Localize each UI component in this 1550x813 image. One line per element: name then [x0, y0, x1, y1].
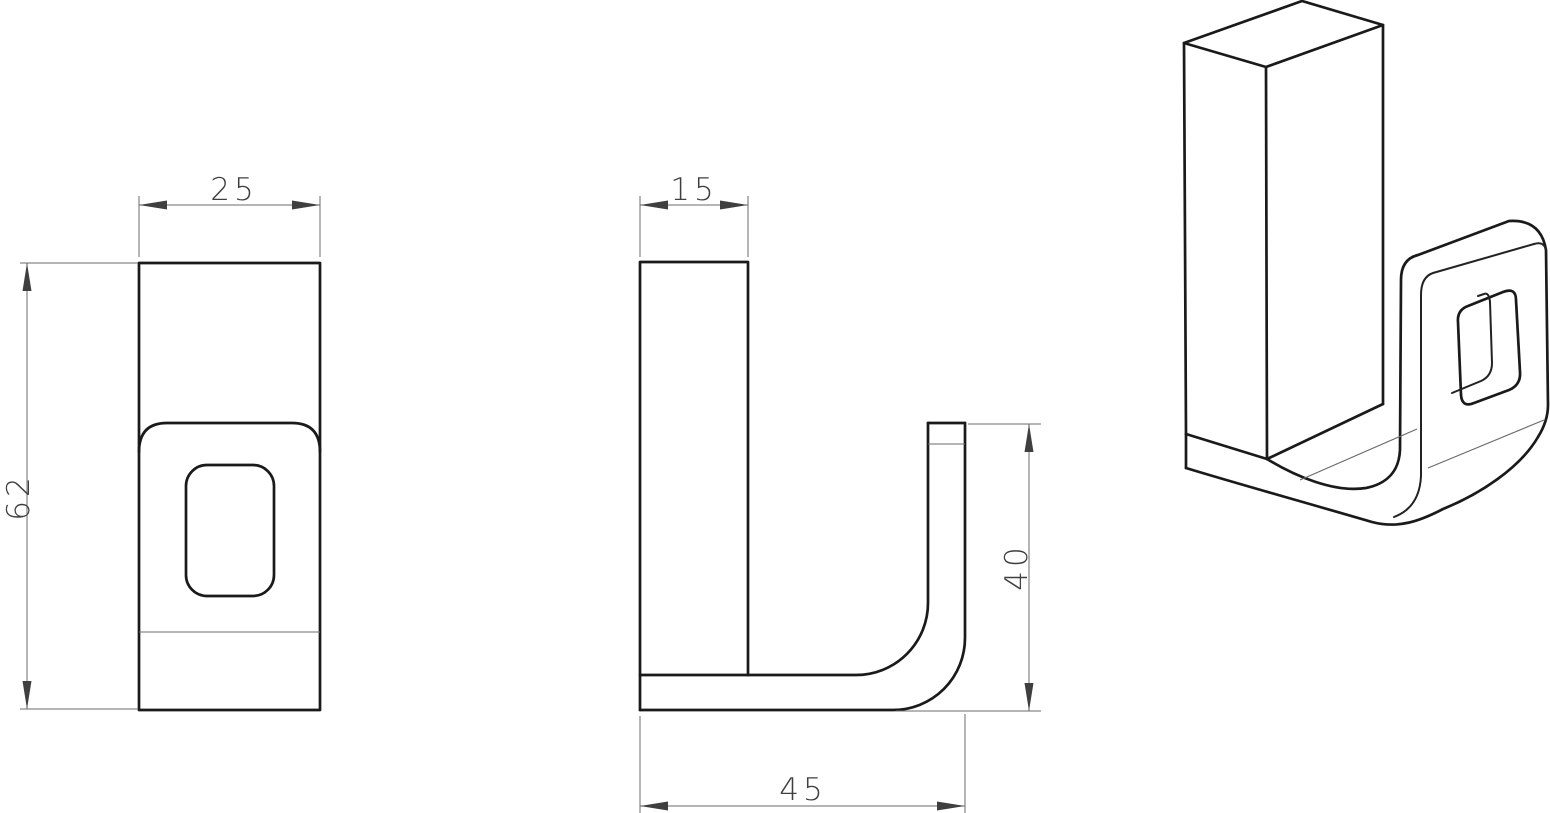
- arrowhead-bottom: [23, 681, 32, 709]
- side-inner-profile: [640, 423, 928, 675]
- iso-strap-outer-outline: [1186, 221, 1548, 525]
- iso-prism-top-face: [1184, 1, 1383, 67]
- dimension-base-depth: 45: [640, 714, 965, 813]
- dimension-front-width: 25: [139, 172, 320, 257]
- arrowhead-top: [23, 263, 32, 291]
- dimension-side-width: 15: [640, 172, 748, 257]
- dimension-front-height: 62: [1, 263, 138, 709]
- dimension-value-side-width: 15: [670, 172, 717, 208]
- dimension-value-front-width: 25: [210, 172, 257, 208]
- arrowhead-left: [139, 201, 167, 210]
- dimension-hook-height: 40: [896, 424, 1041, 711]
- side-back-plate: [640, 262, 748, 710]
- iso-lip-bottom-tangent-line: [1428, 420, 1544, 468]
- dimension-value-front-height: 62: [1, 473, 37, 520]
- isometric-view: [1184, 1, 1548, 525]
- side-view: [640, 262, 965, 710]
- iso-floor-back-edge: [1267, 404, 1383, 459]
- front-hole: [186, 465, 274, 596]
- iso-prism-front-edge: [1266, 67, 1267, 459]
- dimension-value-base-depth: 45: [779, 772, 826, 808]
- extension-lines: [20, 263, 138, 709]
- arrowhead-right: [292, 201, 320, 210]
- iso-left-face-bottom-edge: [1186, 434, 1267, 459]
- front-view: [139, 263, 320, 710]
- front-lip-top-edge: [139, 423, 320, 452]
- arrowhead-top: [1025, 424, 1034, 452]
- arrowhead-right: [720, 201, 748, 210]
- hook-drawing-svg: 25 62 15 40 45: [0, 0, 1550, 813]
- front-outer-rect: [139, 263, 320, 710]
- side-outer-profile: [640, 423, 965, 710]
- iso-lip-inner-band-edge: [1394, 243, 1546, 517]
- arrowhead-right: [937, 802, 965, 811]
- arrowhead-left: [640, 802, 668, 811]
- iso-prism-left-edge: [1184, 43, 1186, 434]
- arrowhead-bottom: [1025, 683, 1034, 711]
- technical-drawing-sheet: 25 62 15 40 45: [0, 0, 1550, 813]
- arrowhead-left: [640, 201, 668, 210]
- dimension-value-hook-height: 40: [999, 543, 1035, 590]
